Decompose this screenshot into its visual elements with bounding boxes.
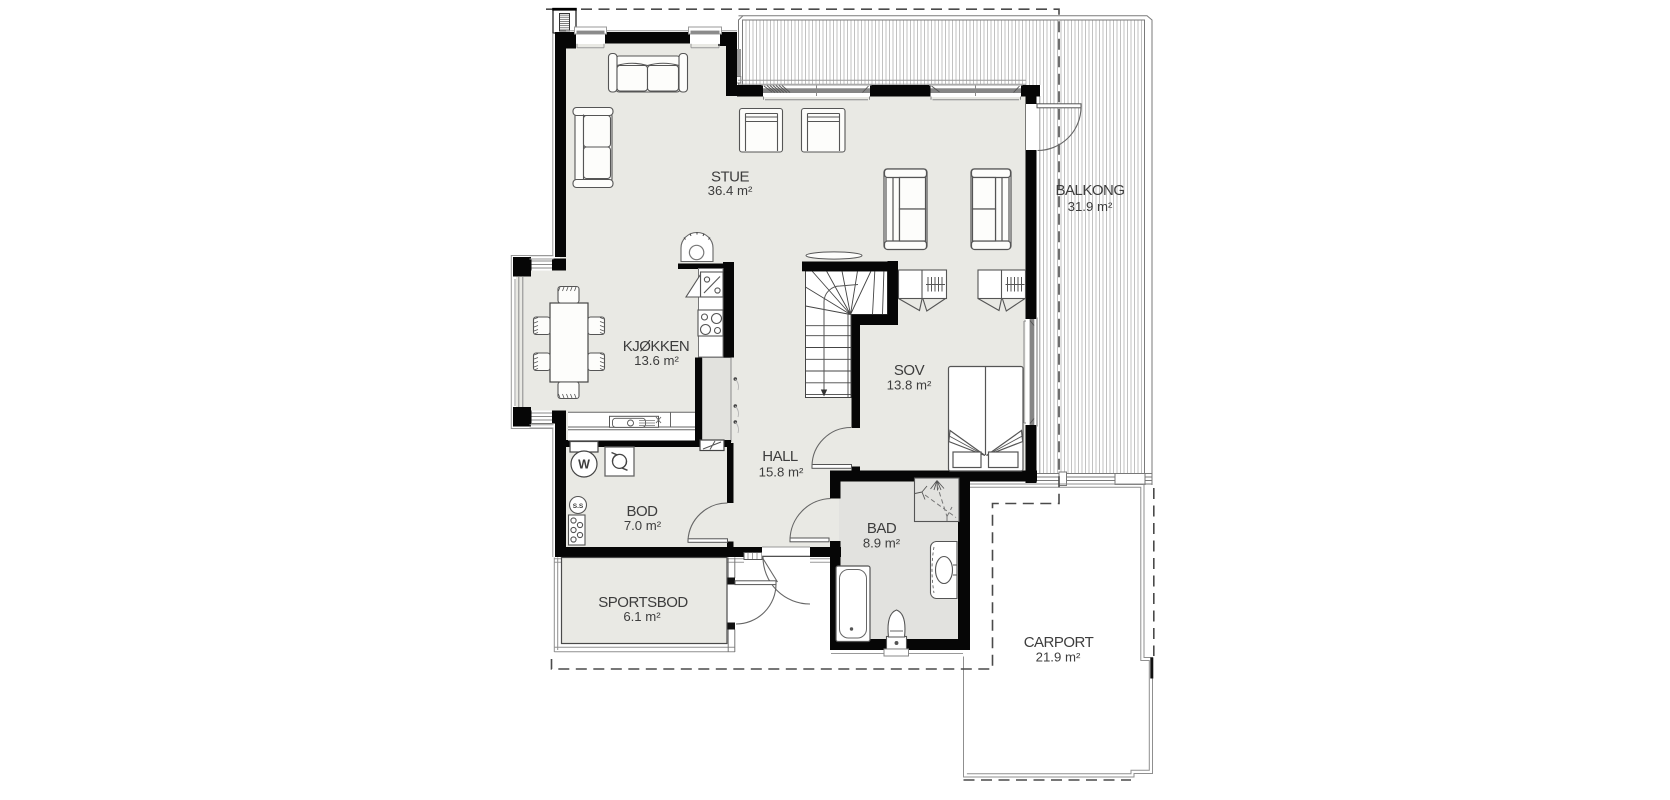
svg-text:36.4 m²: 36.4 m² <box>708 183 753 198</box>
svg-text:13.6 m²: 13.6 m² <box>634 353 679 368</box>
svg-text:CARPORT: CARPORT <box>1024 634 1094 651</box>
svg-text:6.1 m²: 6.1 m² <box>623 609 661 624</box>
svg-text:7.0 m²: 7.0 m² <box>624 518 662 533</box>
svg-text:W: W <box>578 458 590 472</box>
svg-text:21.9 m²: 21.9 m² <box>1036 650 1081 665</box>
svg-text:8.9 m²: 8.9 m² <box>863 536 901 551</box>
svg-text:S.S: S.S <box>573 503 584 510</box>
svg-text:13.8 m²: 13.8 m² <box>887 378 932 393</box>
svg-text:31.9 m²: 31.9 m² <box>1068 199 1113 214</box>
svg-text:BAD: BAD <box>867 520 897 537</box>
svg-text:15.8 m²: 15.8 m² <box>759 465 804 480</box>
svg-text:HALL: HALL <box>762 448 798 465</box>
svg-text:BALKONG: BALKONG <box>1055 182 1124 199</box>
svg-text:SOV: SOV <box>894 362 925 379</box>
